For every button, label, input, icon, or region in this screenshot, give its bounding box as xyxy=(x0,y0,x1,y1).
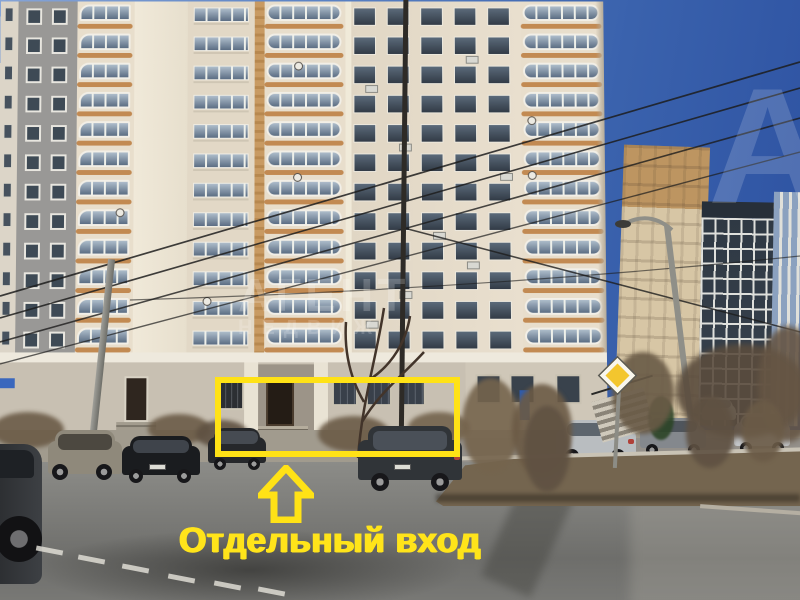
car-windows xyxy=(0,450,34,478)
wheel xyxy=(129,469,143,483)
license-plate xyxy=(149,464,166,470)
bush xyxy=(742,400,784,462)
wheel xyxy=(214,458,226,470)
road-marking-dash xyxy=(258,586,285,596)
watermark-center: АГЕНТ НЕДВИЖ xyxy=(238,272,409,338)
road-marking-dash xyxy=(168,573,195,583)
wheel xyxy=(52,464,68,480)
road-marking-dash xyxy=(122,563,149,573)
car-foreground xyxy=(0,444,44,592)
watermark-corner: АН xyxy=(708,64,800,229)
wheel xyxy=(96,464,112,480)
license-plate xyxy=(394,464,411,470)
car xyxy=(122,436,200,482)
annotated-street-photo: АГЕНТ НЕДВИЖ АН Отдельный вход xyxy=(0,0,800,600)
road-marking-dash xyxy=(214,580,241,590)
arrow-up-icon xyxy=(258,465,314,523)
wheel xyxy=(371,473,389,491)
caption-text: Отдельный вход xyxy=(140,521,520,561)
wheel xyxy=(431,473,449,491)
bush xyxy=(686,396,734,468)
entrance-highlight-box xyxy=(215,377,460,457)
car-windows xyxy=(58,434,111,450)
car xyxy=(48,430,122,482)
wheel xyxy=(177,469,191,483)
taillight xyxy=(628,439,634,444)
bush xyxy=(524,406,570,492)
road-marking-dash xyxy=(78,554,105,564)
island-shadow xyxy=(436,494,800,502)
car-windows xyxy=(133,440,189,454)
